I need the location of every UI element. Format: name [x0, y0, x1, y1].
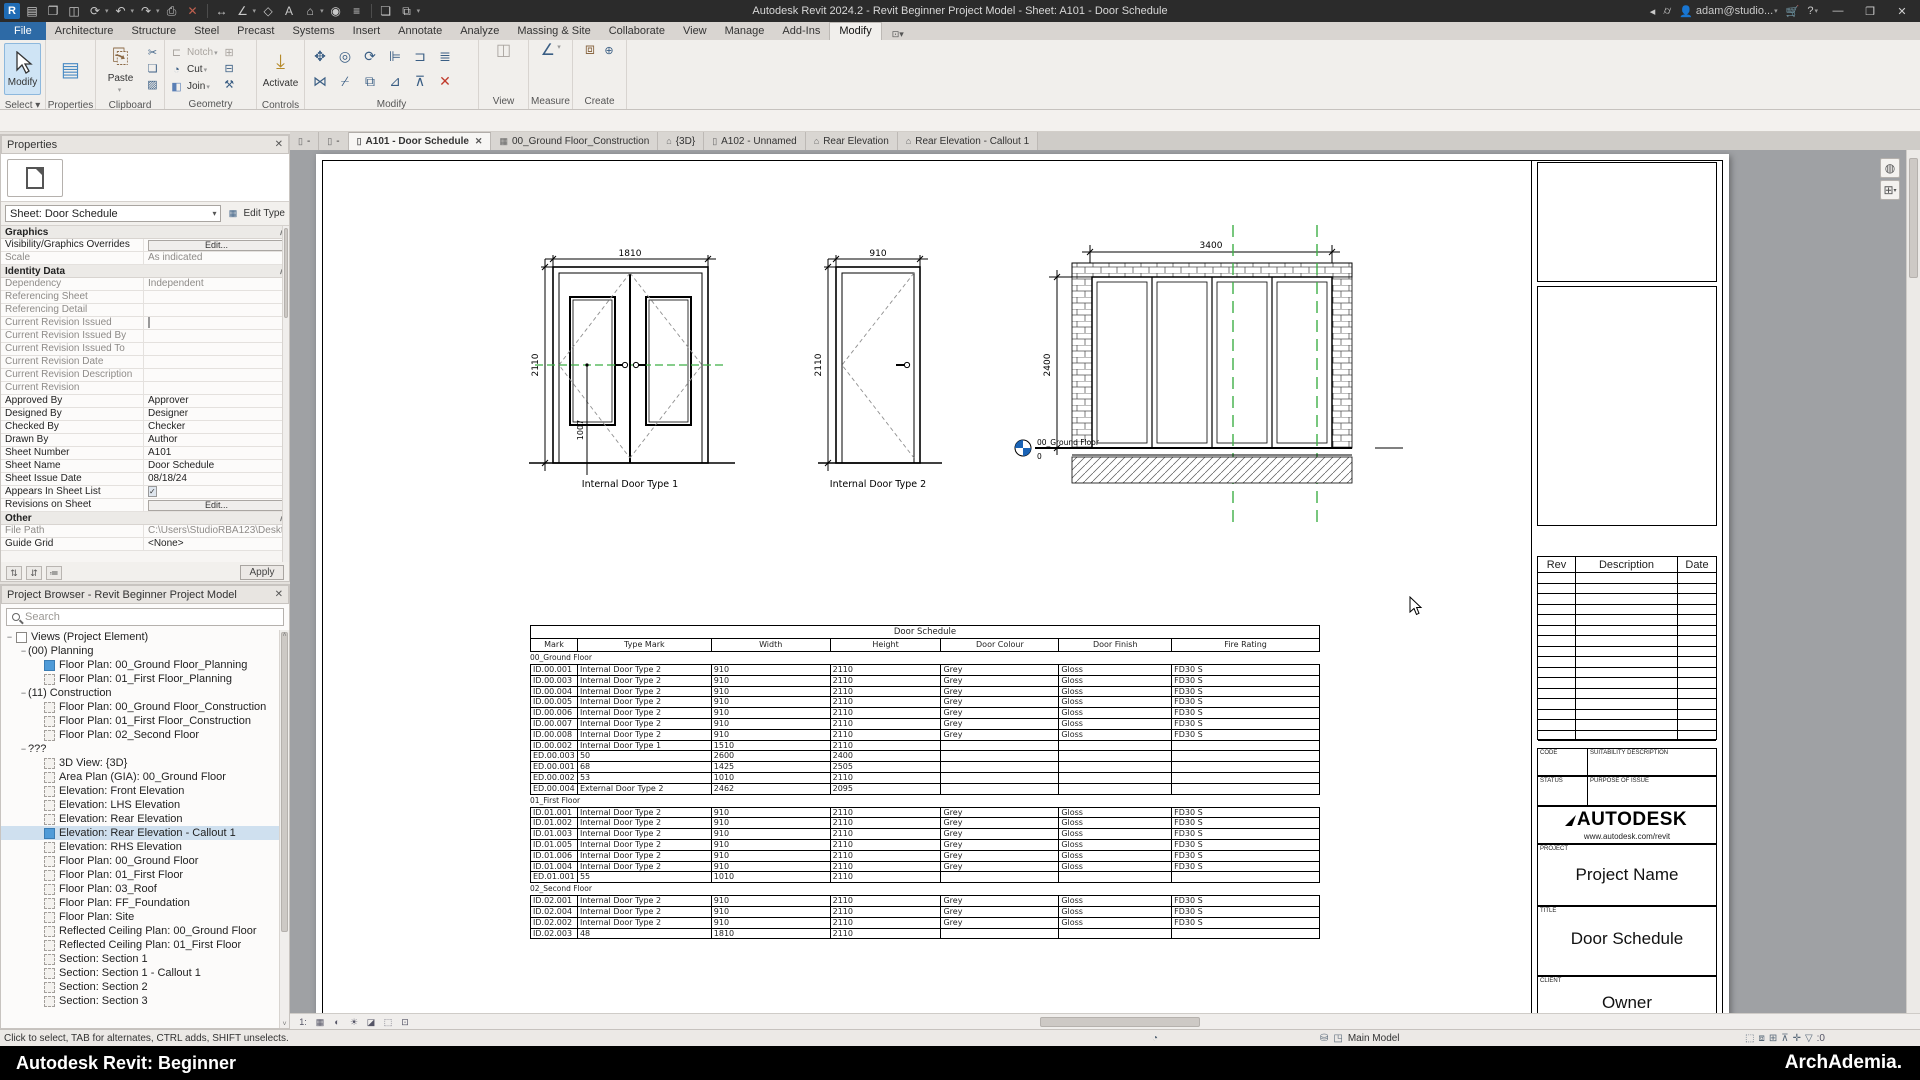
redo-icon[interactable]: ↷ [137, 3, 155, 19]
property-label: Referencing Sheet [1, 291, 144, 303]
edit-button[interactable]: Edit... [148, 500, 285, 511]
property-section-header[interactable]: Identity Data∧ [1, 265, 289, 278]
search-collapse-icon[interactable]: ◂ [1650, 5, 1656, 18]
schedule-cell: Grey [941, 708, 1059, 719]
ui-toggle-icon[interactable]: ▤ [23, 3, 41, 19]
revision-empty-row [1538, 636, 1716, 647]
toolbar-separator [207, 4, 208, 18]
schedule-cell: Gloss [1059, 719, 1172, 730]
tree-item[interactable]: Section: Section 2 [1, 980, 289, 994]
tree-item-label: Elevation: Rear Elevation - Callout 1 [59, 827, 236, 839]
modify-tool-button[interactable]: Modify [4, 43, 41, 95]
schedule-cell: 1510 [712, 741, 831, 752]
undo-dropdown-icon[interactable]: ▾ [131, 7, 135, 15]
align-icon[interactable]: ⊫ [384, 45, 406, 67]
tree-item[interactable]: −Views (Project Element) [1, 630, 289, 644]
schedule-cell: Internal Door Type 2 [578, 851, 712, 862]
move-icon[interactable]: ✥ [309, 45, 331, 67]
schedule-cell: Gloss [1059, 851, 1172, 862]
ribbon-tab-massing-site[interactable]: Massing & Site [508, 22, 599, 40]
revision-empty-row [1538, 615, 1716, 626]
view-icon [44, 856, 55, 867]
view-icon [44, 772, 55, 783]
schedule-cell: Gloss [1059, 907, 1172, 918]
tree-item[interactable]: Floor Plan: Site [1, 910, 289, 924]
door-type2-label: Internal Door Type 2 [830, 479, 926, 490]
schedule-title: Door Schedule [530, 625, 1320, 638]
ribbon-tab-modify[interactable]: Modify [829, 22, 881, 40]
properties-sort-icon[interactable]: ⇵ [26, 566, 42, 580]
edit-button[interactable]: Edit... [148, 240, 285, 251]
property-value[interactable]: Edit... [144, 239, 289, 251]
view-icon [44, 968, 55, 979]
text-icon[interactable]: A [280, 3, 298, 19]
create-similar-icon[interactable]: ⊕ [602, 43, 617, 57]
revision-empty-row [1538, 657, 1716, 668]
status-hint: Click to select, TAB for alternates, CTR… [0, 1033, 289, 1044]
property-value[interactable]: A101 [144, 447, 289, 459]
schedule-cell [941, 751, 1059, 762]
activate-controls-button[interactable]: ⤓ Activate [261, 43, 300, 95]
scale-control-icon[interactable]: 1: [296, 1016, 310, 1028]
view-icon [44, 702, 55, 713]
view-icon [44, 870, 55, 881]
schedule-cell: 2110 [831, 896, 942, 907]
schedule-cell: 910 [712, 840, 831, 851]
schedule-cell: Internal Door Type 2 [578, 676, 712, 687]
property-value[interactable] [144, 291, 289, 303]
properties-toggle-button[interactable]: ▤ [50, 43, 91, 95]
schedule-cell: Grey [941, 687, 1059, 698]
tree-item[interactable]: Floor Plan: 01_First Floor [1, 868, 289, 882]
schedule-cell: 910 [712, 665, 831, 676]
cut-tool[interactable]: ◔Cut▾ [169, 62, 218, 77]
ribbon-tab-analyze[interactable]: Analyze [451, 22, 508, 40]
schedule-row: ID.02.0034818102110 [531, 929, 1320, 940]
section-icon[interactable]: ◉ [327, 3, 345, 19]
ribbon-panel-geometry: ⊏Notch▾ ◔Cut▾ ◧Join▾ ⊞ ⊟ ⚒ Geometry [165, 40, 257, 109]
view-control-bar: 1: ▦ ◐ ☀ ◪ ⬚ ⊡ [290, 1016, 412, 1028]
redo-dropdown-icon[interactable]: ▾ [156, 7, 160, 15]
property-value[interactable]: Checker [144, 421, 289, 433]
copy-to-clipboard-icon[interactable]: ❏ [145, 61, 160, 75]
property-value[interactable]: Edit... [144, 499, 289, 511]
ribbon-tab-annotate[interactable]: Annotate [389, 22, 451, 40]
schedule-cell: Grey [941, 676, 1059, 687]
schedule-row: ID.00.004Internal Door Type 29102110Grey… [531, 687, 1320, 698]
help-icon[interactable]: ?▾ [1807, 5, 1818, 17]
tree-item[interactable]: Floor Plan: 00_Ground Floor [1, 854, 289, 868]
property-row: Appears In Sheet List✓ [1, 486, 289, 499]
account-menu[interactable]: 👤adam@studio...▾ [1679, 5, 1777, 18]
browser-search-input[interactable]: Search [6, 608, 284, 626]
view-icon [44, 730, 55, 741]
schedule-cell: ID.00.006 [531, 708, 578, 719]
schedule-row: ID.01.005Internal Door Type 29102110Grey… [531, 840, 1320, 851]
exclude-options-icon[interactable]: ⬚ [1745, 1033, 1754, 1044]
zoom-tool-icon[interactable]: ⊞▾ [1880, 180, 1900, 200]
activate-icon: ⤓ [268, 50, 294, 76]
schedule-group-label: 01_First Floor [530, 795, 1320, 807]
main-model-label[interactable]: Main Model [1348, 1033, 1400, 1044]
property-value[interactable]: C:\Users\StudioRBA123\Deskto... [144, 525, 289, 537]
tree-item[interactable]: Floor Plan: 00_Ground Floor_Construction [1, 700, 289, 714]
join-tool[interactable]: ◧Join▾ [169, 79, 218, 94]
schedule-cell: FD30 S [1172, 730, 1320, 741]
default-3d-view-icon[interactable]: ⌂ [301, 3, 319, 19]
tree-item-label: Reflected Ceiling Plan: 00_Ground Floor [59, 925, 257, 937]
search-icon[interactable]: ⌭ [1663, 5, 1671, 18]
sheet-type-icon [26, 167, 44, 189]
tree-item[interactable]: Section: Section 1 - Callout 1 [1, 966, 289, 980]
svg-text:1810: 1810 [619, 249, 642, 259]
tree-item[interactable]: Floor Plan: 03_Roof [1, 882, 289, 896]
tree-item[interactable]: Section: Section 1 [1, 952, 289, 966]
schedule-column-header: Mark [531, 639, 578, 652]
schedule-cell: 2110 [831, 818, 942, 829]
property-value[interactable]: <None> [144, 538, 289, 550]
schedule-cell: Gloss [1059, 818, 1172, 829]
schedule-cell: 2600 [712, 751, 831, 762]
transfer-icon[interactable]: ✕ [184, 3, 202, 19]
revision-empty-row [1538, 689, 1716, 700]
tree-item[interactable]: Reflected Ceiling Plan: 01_First Floor [1, 938, 289, 952]
switch-windows-dropdown-icon[interactable]: ▾ [417, 7, 421, 15]
view-icon [44, 884, 55, 895]
bottom-banner: Autodesk Revit: Beginner ArchAdemia. [0, 1046, 1920, 1080]
copy-icon[interactable]: ◎ [334, 45, 356, 67]
ribbon-panel-properties: ▤ Properties [46, 40, 96, 109]
visual-style-icon[interactable]: ◐ [330, 1016, 344, 1028]
tree-item[interactable]: Elevation: Front Elevation [1, 784, 289, 798]
tree-collapse-icon[interactable]: − [19, 646, 28, 656]
schedule-cell: FD30 S [1172, 676, 1320, 687]
checkbox[interactable] [148, 317, 150, 328]
edit-type-button[interactable]: ▦Edit Type [225, 207, 285, 221]
array-icon[interactable]: ⧉ [359, 70, 381, 92]
ribbon-tab-manage[interactable]: Manage [716, 22, 774, 40]
user-icon: 👤 [1679, 5, 1693, 18]
drawing-canvas[interactable]: 1810 2110 1007 Inter [290, 150, 1920, 1013]
properties-header[interactable]: Properties✕ [1, 135, 289, 154]
schedule-cell [941, 872, 1059, 883]
offset-icon[interactable]: ≣ [434, 45, 456, 67]
ribbon-tab-systems[interactable]: Systems [283, 22, 343, 40]
horizontal-scrollbar[interactable] [1040, 1017, 1200, 1027]
scale-icon[interactable]: ⊿ [384, 70, 406, 92]
svg-text:2110: 2110 [814, 353, 824, 376]
measure-tool-icon[interactable]: ∠ [540, 43, 555, 57]
view-tab-label: 00_Ground Floor_Construction [512, 136, 649, 147]
notch-icon: ⊏ [169, 46, 184, 60]
property-row: Current Revision Issued By [1, 330, 289, 343]
property-value[interactable]: Independent [144, 278, 289, 290]
schedule-cell: ID.00.002 [531, 741, 578, 752]
schedule-cell: 910 [712, 719, 831, 730]
view-tab--3d-[interactable]: ⌂{3D} [658, 132, 704, 150]
navigation-bar: ◍ ⊞▾ [1880, 158, 1902, 200]
tree-item[interactable]: Reflected Ceiling Plan: 00_Ground Floor [1, 924, 289, 938]
open-icon[interactable]: ❐ [44, 3, 62, 19]
tree-item[interactable]: Elevation: Rear Elevation - Callout 1 [1, 826, 289, 840]
tree-item[interactable]: Elevation: LHS Elevation [1, 798, 289, 812]
tree-item[interactable]: Floor Plan: FF_Foundation [1, 896, 289, 910]
schedule-cell: Gloss [1059, 840, 1172, 851]
svg-text:0: 0 [1037, 452, 1042, 461]
schedule-cell: 910 [712, 907, 831, 918]
undo-icon[interactable]: ↶ [112, 3, 130, 19]
close-view-icon[interactable]: ✕ [475, 136, 483, 147]
tree-item[interactable]: −(00) Planning [1, 644, 289, 658]
property-section-header[interactable]: Other∧ [1, 512, 289, 525]
property-label: Visibility/Graphics Overrides [1, 239, 144, 251]
schedule-cell [1059, 762, 1172, 773]
ribbon-tab-precast[interactable]: Precast [228, 22, 283, 40]
view-tab-rear-elevation[interactable]: ⌂Rear Elevation [806, 132, 898, 150]
schedule-row: ID.01.001Internal Door Type 29102110Grey… [531, 808, 1320, 819]
ribbon-tab-steel[interactable]: Steel [185, 22, 228, 40]
split-icon[interactable]: ⌿ [334, 70, 356, 92]
property-value[interactable] [144, 304, 289, 316]
view-tab-label: Rear Elevation [823, 136, 889, 147]
worksets-icon[interactable]: ⛁ [1320, 1033, 1328, 1044]
edit-inplace-icon[interactable]: ⧈ [1758, 1033, 1764, 1044]
default-3d-view-dropdown-icon[interactable]: ▾ [320, 7, 324, 15]
schedule-cell: 2110 [831, 697, 942, 708]
view-tab-label: Rear Elevation - Callout 1 [915, 136, 1029, 147]
schedule-cell: 2110 [831, 687, 942, 698]
dimension-icon[interactable]: ↔ [213, 3, 231, 19]
pin-icon[interactable]: ⊼ [409, 70, 431, 92]
vertical-scrollbar[interactable] [1906, 150, 1920, 1013]
door-type1-drawing[interactable]: 1810 2110 1007 Inter [525, 245, 740, 495]
tree-item[interactable]: 3D View: {3D} [1, 756, 289, 770]
property-row: Referencing Detail [1, 304, 289, 317]
tree-item[interactable]: −??? [1, 742, 289, 756]
mirror-icon[interactable]: ⋈ [309, 70, 331, 92]
tree-item-label: Floor Plan: Site [59, 911, 134, 923]
elevation-drawing[interactable]: 3400 2400 [1005, 225, 1405, 545]
sync-icon[interactable]: ⟳ [86, 3, 104, 19]
property-value[interactable] [144, 330, 289, 342]
canvas-bottom-bar: 1: ▦ ◐ ☀ ◪ ⬚ ⊡ [290, 1013, 1920, 1029]
schedule-cell: 1010 [712, 872, 831, 883]
ribbon-tab-structure[interactable]: Structure [122, 22, 185, 40]
demolish-icon[interactable]: ⚒ [222, 77, 237, 91]
modify-options-icon[interactable]: ⊡▾ [892, 29, 904, 40]
ribbon-tab-view[interactable]: View [674, 22, 716, 40]
tree-item[interactable]: Floor Plan: 00_Ground Floor_Planning [1, 658, 289, 672]
schedule-row: ID.00.008Internal Door Type 29102110Grey… [531, 730, 1320, 741]
ribbon-tab-collaborate[interactable]: Collaborate [600, 22, 674, 40]
project-browser-close-icon[interactable]: ✕ [275, 589, 283, 600]
schedule-cell: ED.00.004 [531, 784, 578, 795]
design-options-icon[interactable]: ◳ [1333, 1033, 1342, 1044]
sync-dropdown-icon[interactable]: ▾ [105, 7, 109, 15]
schedule-cell: Gloss [1059, 730, 1172, 741]
property-value[interactable] [144, 369, 289, 381]
properties-filter-icon[interactable]: ⇅ [6, 566, 22, 580]
schedule-cell: 1425 [712, 762, 831, 773]
property-value[interactable]: Door Schedule [144, 460, 289, 472]
mouse-cursor [1408, 596, 1424, 616]
detail-level-icon[interactable]: ▦ [313, 1016, 327, 1028]
print-icon[interactable]: ⎙ [163, 3, 181, 19]
properties-close-icon[interactable]: ✕ [275, 139, 283, 150]
tree-item[interactable]: Elevation: Rear Elevation [1, 812, 289, 826]
type-selector[interactable]: Sheet: Door Schedule▾ [5, 205, 221, 222]
view-tab--[interactable]: ▯- [290, 132, 319, 150]
save-icon[interactable]: ◫ [65, 3, 83, 19]
select-pinned-icon[interactable]: ⊼ [1781, 1033, 1788, 1044]
drag-on-selection-icon[interactable]: ✛ [1793, 1033, 1801, 1044]
revision-empty-row [1538, 605, 1716, 616]
tree-item[interactable]: Area Plan (GIA): 00_Ground Floor [1, 770, 289, 784]
view-tab-a101-door-schedule[interactable]: ▯A101 - Door Schedule✕ [349, 132, 492, 150]
property-value[interactable]: Approver [144, 395, 289, 407]
measure-dropdown-icon[interactable]: ▾ [253, 7, 257, 15]
property-section-header[interactable]: Graphics∧ [1, 226, 289, 239]
switch-windows-icon[interactable]: ⧉ [398, 3, 416, 19]
type-preview[interactable]: Sheet [1, 154, 289, 202]
view-tab--[interactable]: ▯- [319, 132, 348, 150]
wall-joins-icon[interactable]: ⊞ [222, 45, 237, 59]
sun-path-icon[interactable]: ☀ [347, 1016, 361, 1028]
schedule-cell: Gloss [1059, 918, 1172, 929]
tree-item-label: Floor Plan: 02_Second Floor [59, 729, 199, 741]
sheet-a101[interactable]: 1810 2110 1007 Inter [316, 154, 1729, 1013]
autodesk-logo: AUTODESK [1567, 809, 1687, 831]
ribbon-tab-architecture[interactable]: Architecture [46, 22, 123, 40]
property-value[interactable]: ✓ [144, 486, 289, 498]
view-tab-rear-elevation-callout-1[interactable]: ⌂Rear Elevation - Callout 1 [898, 132, 1038, 150]
schedule-cell: Internal Door Type 2 [578, 697, 712, 708]
property-value[interactable]: Designer [144, 408, 289, 420]
measure-icon[interactable]: ∠ [234, 3, 252, 19]
tree-item-label: Section: Section 2 [59, 981, 148, 993]
rotate-icon[interactable]: ⟳ [359, 45, 381, 67]
property-row: Current Revision Issued To [1, 343, 289, 356]
shadows-icon[interactable]: ◪ [364, 1016, 378, 1028]
tree-item[interactable]: Floor Plan: 01_First Floor_Construction [1, 714, 289, 728]
view-icon [44, 940, 55, 951]
property-label: Current Revision Date [1, 356, 144, 368]
property-value[interactable] [144, 317, 289, 329]
property-value[interactable] [144, 356, 289, 368]
tree-item-label: Elevation: RHS Elevation [59, 841, 182, 853]
view-icon [44, 954, 55, 965]
view-tab-00-ground-floor-construction[interactable]: ▦00_Ground Floor_Construction [491, 132, 658, 150]
filter-icon[interactable]: ▽ [1805, 1033, 1813, 1044]
schedule-group-block: ID.01.001Internal Door Type 29102110Grey… [530, 807, 1320, 884]
view-icon [44, 926, 55, 937]
tree-item[interactable]: Floor Plan: 01_First Floor_Planning [1, 672, 289, 686]
select-links-icon[interactable]: ⊞ [1769, 1033, 1777, 1044]
paste-button[interactable]: ⎘ Paste▾ [100, 43, 141, 95]
thin-lines-icon[interactable]: ≡ [348, 3, 366, 19]
tree-item-label: Floor Plan: 00_Ground Floor_Construction [59, 701, 266, 713]
schedule-cell: 2110 [831, 773, 942, 784]
tree-item[interactable]: Section: Section 3 [1, 994, 289, 1008]
view-icon [44, 674, 55, 685]
project-browser-header[interactable]: Project Browser - Revit Beginner Project… [1, 585, 289, 604]
schedule-cell: 2110 [831, 741, 942, 752]
hide-elements-icon[interactable]: ◫ [496, 43, 511, 57]
ribbon-tab-file[interactable]: File [0, 22, 46, 40]
door-type2-drawing[interactable]: 910 2110 Internal Door Type 2 [800, 245, 955, 495]
property-value[interactable]: Author [144, 434, 289, 446]
delete-icon[interactable]: ✕ [434, 70, 456, 92]
search-icon [12, 613, 20, 621]
property-label: Current Revision [1, 382, 144, 394]
steering-wheel-icon[interactable]: ◍ [1880, 158, 1900, 178]
match-type-icon[interactable]: ▨ [145, 77, 160, 91]
trim-corner-icon[interactable]: ⊐ [409, 45, 431, 67]
hide-crop-icon[interactable]: ⊡ [398, 1016, 412, 1028]
tree-collapse-icon[interactable]: − [19, 688, 28, 698]
view-icon [44, 842, 55, 853]
property-value[interactable]: 08/18/24 [144, 473, 289, 485]
tree-item[interactable]: Elevation: RHS Elevation [1, 840, 289, 854]
view-blue-icon [44, 660, 55, 671]
property-value[interactable] [144, 343, 289, 355]
minimize-button[interactable]: — [1826, 2, 1850, 20]
crop-view-icon[interactable]: ⬚ [381, 1016, 395, 1028]
schedule-cell: Grey [941, 730, 1059, 741]
cut-geometry-icon: ◔ [169, 63, 184, 77]
store-icon[interactable]: 🛒 [1786, 5, 1800, 18]
titleblock-box-notes [1537, 162, 1717, 282]
tree-item-label: Floor Plan: 03_Roof [59, 883, 157, 895]
tree-item[interactable]: Floor Plan: 02_Second Floor [1, 728, 289, 742]
ribbon-tab-insert[interactable]: Insert [344, 22, 390, 40]
view-tab-a102-unnamed[interactable]: ▯A102 - Unnamed [704, 132, 806, 150]
door-schedule-table[interactable]: Door Schedule MarkType MarkWidthHeightDo… [530, 625, 1320, 939]
ribbon-panel-measure: ∠▾ Measure [529, 40, 573, 109]
schedule-cell: ED.01.001 [531, 872, 578, 883]
restore-button[interactable]: ❐ [1858, 2, 1882, 20]
property-row: Guide Grid<None> [1, 538, 289, 551]
close-hidden-icon[interactable]: ❏ [377, 3, 395, 19]
property-label: Approved By [1, 395, 144, 407]
schedule-cell: Internal Door Type 2 [578, 808, 712, 819]
schedule-cell: 2110 [831, 708, 942, 719]
checkbox[interactable]: ✓ [148, 486, 157, 497]
schedule-cell [941, 929, 1059, 940]
tag-icon[interactable]: ◇ [259, 3, 277, 19]
schedule-row: ID.00.005Internal Door Type 29102110Grey… [531, 697, 1320, 708]
property-value[interactable] [144, 382, 289, 394]
schedule-column-header: Fire Rating [1172, 639, 1320, 652]
tree-collapse-icon[interactable]: − [5, 632, 14, 642]
schedule-cell: Gloss [1059, 708, 1172, 719]
apply-button[interactable]: Apply [240, 565, 284, 580]
schedule-cell [941, 741, 1059, 752]
property-value[interactable]: As indicated [144, 252, 289, 264]
beam-coping-icon[interactable]: ⊟ [222, 61, 237, 75]
cursor-arrow-icon [13, 51, 33, 75]
view-tab-bar: ▯-▯-▯A101 - Door Schedule✕▦00_Ground Flo… [290, 132, 1920, 150]
create-group-icon[interactable]: ⧈ [583, 43, 598, 57]
properties-group-icon[interactable]: ≔ [46, 566, 62, 580]
cut-to-clipboard-icon[interactable]: ✂ [145, 45, 160, 59]
revit-logo-icon[interactable]: R [4, 3, 20, 19]
ribbon-tab-add-ins[interactable]: Add-Ins [773, 22, 829, 40]
tree-collapse-icon[interactable]: − [19, 744, 28, 754]
tree-item[interactable]: −(11) Construction [1, 686, 289, 700]
close-button[interactable]: ✕ [1890, 2, 1914, 20]
ribbon-panel-view: ◫ View [479, 40, 529, 109]
